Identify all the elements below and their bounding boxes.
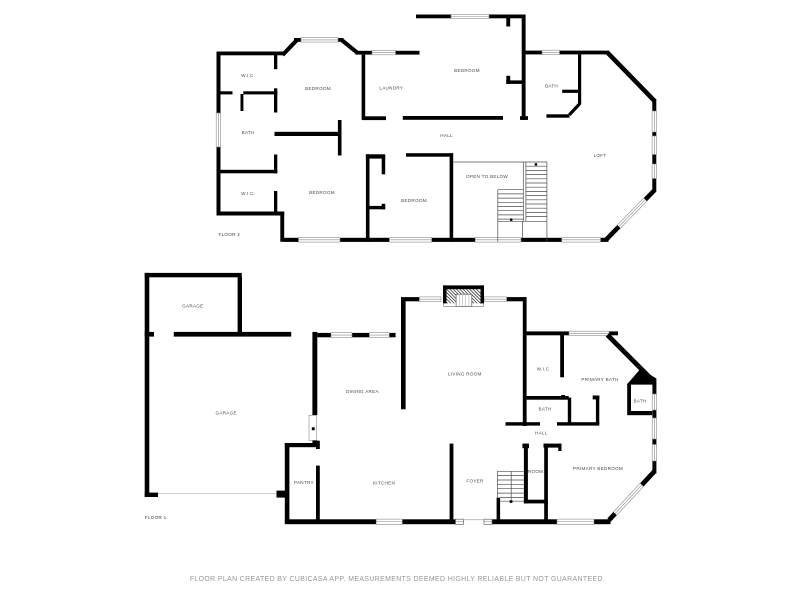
svg-text:OPEN TO BELOW: OPEN TO BELOW [466, 174, 508, 179]
svg-text:FLOOR PLAN CREATED BY CUBICASA: FLOOR PLAN CREATED BY CUBICASA APP. MEAS… [190, 576, 605, 583]
svg-text:LOFT: LOFT [594, 153, 607, 158]
svg-text:FOYER: FOYER [466, 478, 484, 483]
svg-text:BATH: BATH [633, 398, 646, 403]
svg-text:FLOOR 2: FLOOR 2 [219, 232, 241, 237]
svg-text:BATH: BATH [538, 406, 551, 411]
svg-text:HALL: HALL [535, 430, 548, 435]
svg-text:BATH: BATH [242, 130, 255, 135]
svg-text:BEDROOM: BEDROOM [454, 68, 480, 73]
svg-text:LAUNDRY: LAUNDRY [379, 85, 403, 90]
svg-text:GARAGE: GARAGE [182, 304, 203, 309]
svg-text:FLOOR 1.: FLOOR 1. [145, 515, 168, 520]
svg-text:ROOM: ROOM [528, 469, 543, 474]
svg-text:KITCHEN: KITCHEN [373, 480, 395, 485]
svg-text:W.I.C.: W.I.C. [241, 73, 255, 78]
svg-text:GARAGE: GARAGE [216, 410, 237, 415]
svg-text:HALL: HALL [440, 133, 453, 138]
svg-text:BEDROOM: BEDROOM [309, 190, 335, 195]
svg-text:PANTRY: PANTRY [294, 480, 314, 485]
svg-text:LIVING ROOM: LIVING ROOM [448, 372, 482, 377]
svg-text:DINING AREA: DINING AREA [346, 389, 379, 394]
svg-text:PRIMARY BATH: PRIMARY BATH [581, 377, 618, 382]
svg-text:W.I.C: W.I.C [537, 366, 550, 371]
svg-text:W.I.C.: W.I.C. [241, 191, 255, 196]
svg-text:PRIMARY BEDROOM: PRIMARY BEDROOM [573, 466, 623, 471]
svg-text:BATH: BATH [545, 84, 558, 89]
svg-text:BEDROOM: BEDROOM [305, 86, 331, 91]
svg-text:BEDROOM: BEDROOM [401, 198, 427, 203]
